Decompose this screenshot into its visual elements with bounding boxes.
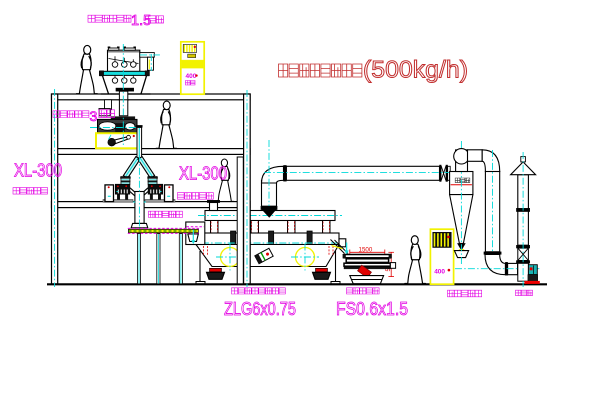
svg-text:ZLG6x0.75: ZLG6x0.75: [224, 299, 296, 319]
svg-text:XL-300: XL-300: [14, 161, 62, 181]
svg-text:400: 400: [434, 268, 445, 275]
svg-text:1.5: 1.5: [131, 13, 151, 29]
svg-text:FS0.6x1.5: FS0.6x1.5: [336, 299, 408, 319]
svg-text:1500: 1500: [359, 246, 373, 253]
svg-text:XL-300: XL-300: [179, 164, 227, 184]
svg-text:(500kg/h): (500kg/h): [363, 57, 468, 84]
svg-text:400: 400: [186, 73, 197, 80]
svg-text:3: 3: [90, 108, 98, 124]
